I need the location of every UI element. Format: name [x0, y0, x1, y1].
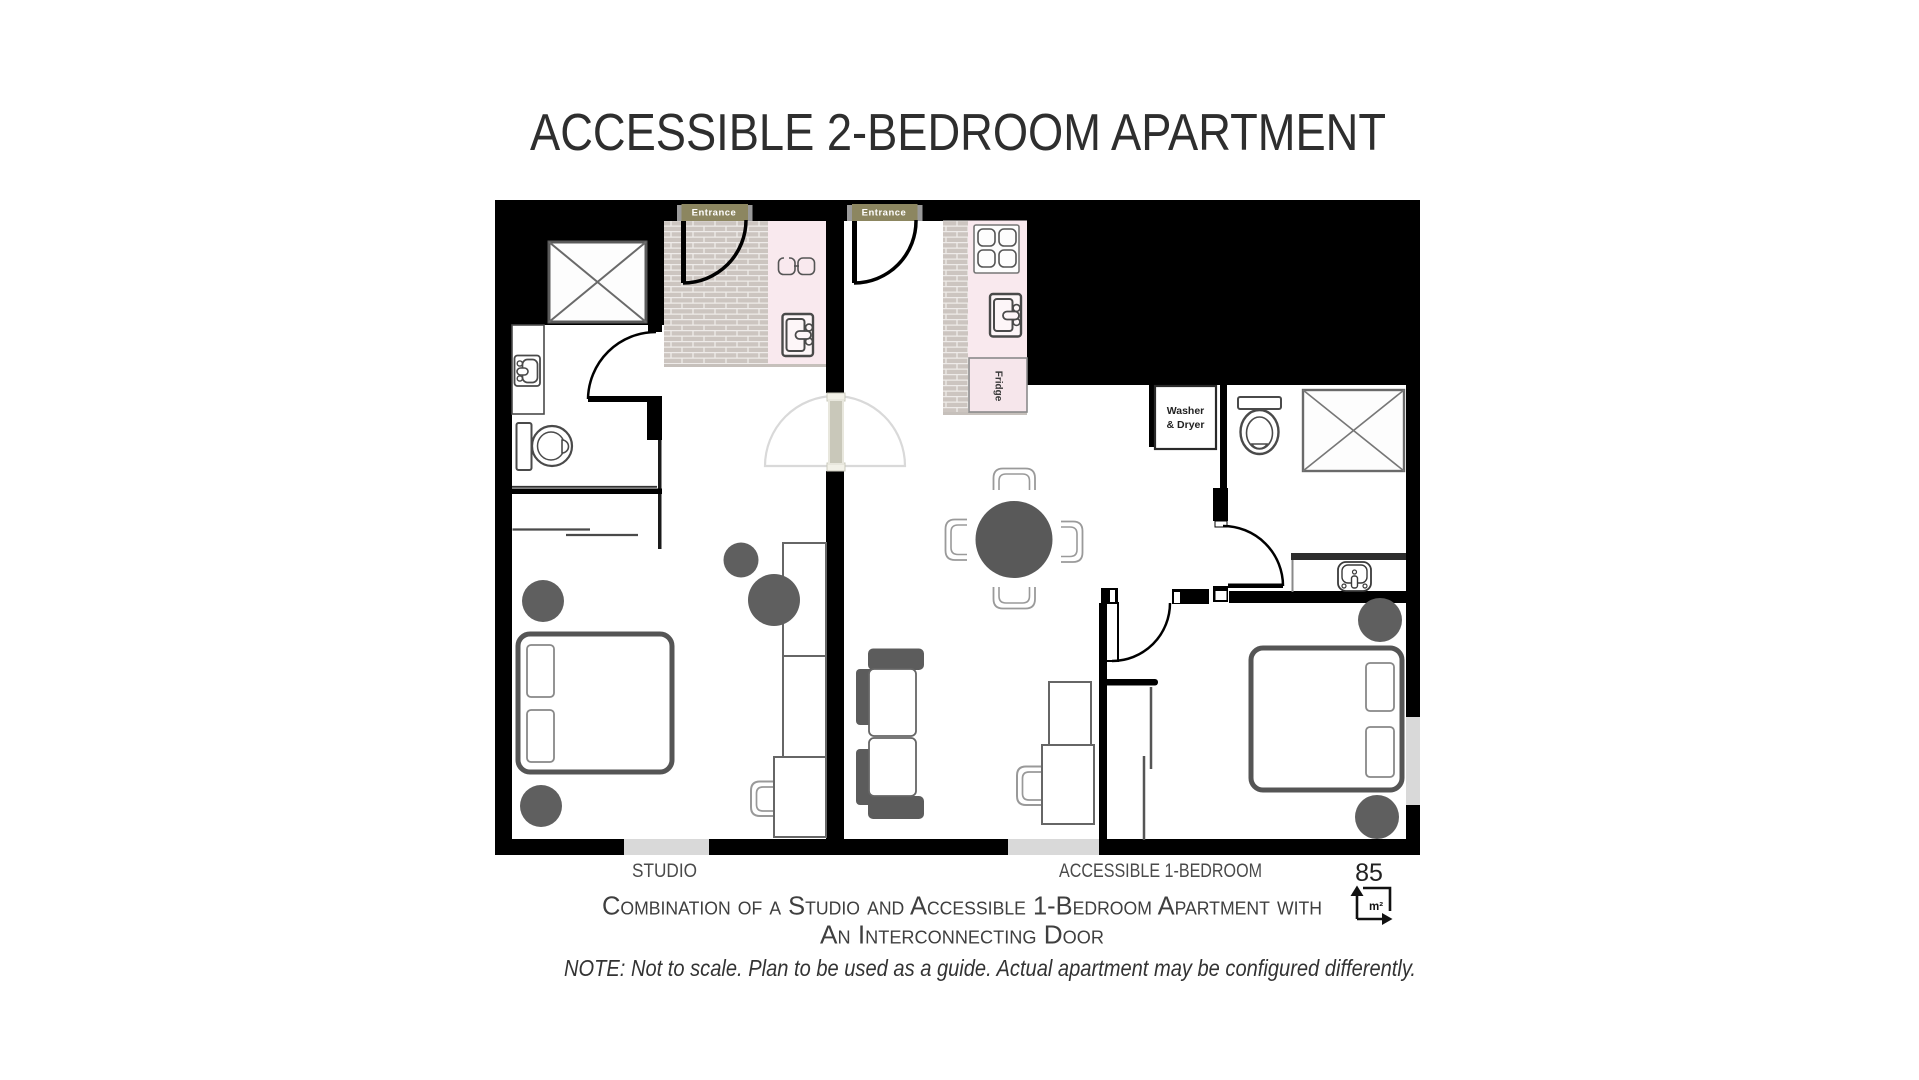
svg-text:Fridge: Fridge [992, 371, 1003, 402]
svg-text:Entrance: Entrance [862, 208, 907, 219]
svg-text:ACCESSIBLE 2-BEDROOM APARTMENT: ACCESSIBLE 2-BEDROOM APARTMENT [530, 103, 1386, 161]
svg-text:Entrance: Entrance [692, 208, 737, 219]
svg-text:m²: m² [1369, 901, 1383, 913]
svg-text:NOTE: Not to scale. Plan to be: NOTE: Not to scale. Plan to be used as a… [564, 955, 1416, 981]
svg-text:STUDIO: STUDIO [632, 860, 697, 882]
svg-text:Washer: Washer [1167, 405, 1205, 417]
svg-text:Combination of a Studio and Ac: Combination of a Studio and Accessible 1… [602, 891, 1322, 921]
svg-text:85: 85 [1355, 859, 1383, 887]
svg-text:An Interconnecting Door: An Interconnecting Door [820, 920, 1104, 950]
svg-text:ACCESSIBLE 1-BEDROOM: ACCESSIBLE 1-BEDROOM [1059, 860, 1262, 882]
svg-text:& Dryer: & Dryer [1167, 419, 1205, 431]
